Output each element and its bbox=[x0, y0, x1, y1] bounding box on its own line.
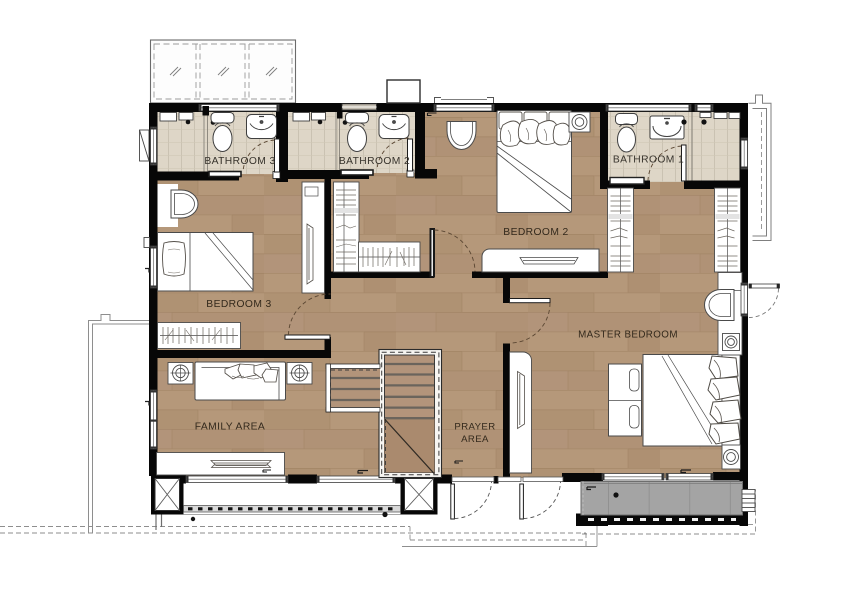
svg-text:MASTER BEDROOM: MASTER BEDROOM bbox=[578, 330, 678, 341]
svg-text:BEDROOM 2: BEDROOM 2 bbox=[503, 227, 568, 238]
svg-text:BATHROOM 2: BATHROOM 2 bbox=[339, 156, 410, 167]
svg-text:BEDROOM 3: BEDROOM 3 bbox=[206, 299, 271, 310]
svg-text:BATHROOM 3: BATHROOM 3 bbox=[204, 156, 275, 167]
svg-text:FAMILY AREA: FAMILY AREA bbox=[195, 422, 265, 433]
svg-text:AREA: AREA bbox=[461, 434, 489, 445]
svg-text:PRAYER: PRAYER bbox=[454, 422, 495, 433]
svg-text:BATHROOM 1: BATHROOM 1 bbox=[613, 155, 684, 166]
